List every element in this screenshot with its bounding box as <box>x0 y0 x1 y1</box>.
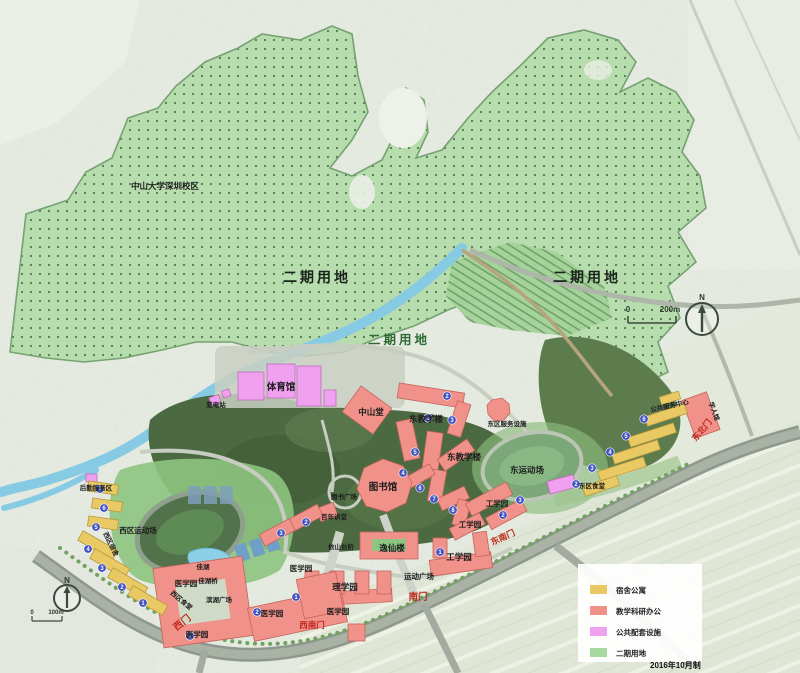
east-teaching-label-1: 东教学楼 <box>409 414 444 424</box>
scale-length-top: 200m <box>660 305 680 314</box>
numbered-marker: 7 <box>430 495 438 503</box>
numbered-marker: 1 <box>292 593 300 601</box>
legend-swatch-public <box>590 627 607 636</box>
legend-swatch-teaching <box>590 606 607 615</box>
east-service-label: 东区服务设施 <box>488 419 528 428</box>
legend-label-public: 公共配套设施 <box>616 627 661 637</box>
campus-master-plan-map: 2 1 3 5 4 6 7 8 2 3 1 2 3 1 1 2 7 6 5 4 … <box>0 0 800 673</box>
gate-southwest-label: 西南门 <box>299 620 325 630</box>
library-label: 图书馆 <box>369 481 398 493</box>
campus-area-label: 中山大学深圳校区 <box>131 181 200 191</box>
north-letter-top: N <box>699 293 705 302</box>
phase2-label-mid: 二期用地 <box>368 332 430 347</box>
med-park-label-2: 医学园 <box>290 563 313 573</box>
numbered-marker: 6 <box>640 415 648 423</box>
numbered-marker: 1 <box>139 599 147 607</box>
numbered-marker: 3 <box>98 564 106 572</box>
substation-label: 变电站 <box>206 400 226 409</box>
scale-length-bottom: 100m <box>48 610 63 616</box>
west-field-label: 西区运动场 <box>119 525 157 535</box>
science-park-label: 理学园 <box>332 582 358 592</box>
jia-lake-label: 佳湖 <box>197 562 211 571</box>
phase2-label-left: 二期用地 <box>283 269 351 285</box>
map-canvas: 2 1 3 5 4 6 7 8 2 3 1 2 3 1 1 2 7 6 5 4 … <box>0 0 800 673</box>
numbered-marker: 2 <box>302 518 310 526</box>
numbered-marker: 5 <box>92 523 100 531</box>
numbered-marker: 5 <box>411 448 419 456</box>
med-park-label-3: 医学园 <box>261 608 284 618</box>
numbered-marker: 5 <box>622 432 630 440</box>
numbered-marker: 6 <box>100 504 108 512</box>
numbered-marker: 3 <box>516 496 524 504</box>
centennial-hall-label: 百年讲堂 <box>321 512 348 521</box>
zhongshan-hall-label: 中山堂 <box>358 407 384 417</box>
eng-park-label-3: 工学园 <box>459 519 482 529</box>
logistics-area-label: 后勤服务区 <box>80 483 113 492</box>
numbered-marker: 4 <box>84 545 92 553</box>
east-teaching-label-2: 东教学楼 <box>447 452 482 462</box>
lakeside-plaza-label: 滨湖广场 <box>206 595 233 604</box>
eng-park-label-2: 工学园 <box>486 498 509 508</box>
numbered-marker: 4 <box>606 448 614 456</box>
legend-swatch-dorm <box>590 585 607 594</box>
north-letter-bottom: N <box>64 576 70 585</box>
legend-label-phase2: 二期用地 <box>616 648 646 658</box>
gymnasium-label: 体育馆 <box>267 381 296 393</box>
legend-label-dorm: 宿舍公寓 <box>616 585 646 595</box>
jia-lake-bridge-label: 佳湖桥 <box>198 576 218 585</box>
numbered-marker: 2 <box>499 511 507 519</box>
numbered-marker: 4 <box>399 469 407 477</box>
eng-park-label-1: 工学园 <box>446 552 472 562</box>
east-field-label: 东运动场 <box>510 465 545 475</box>
yixian-building-label: 逸仙楼 <box>379 543 405 553</box>
numbered-marker: 3 <box>277 529 285 537</box>
legend-swatch-phase2 <box>590 648 607 657</box>
library-plaza-label: 图书广场 <box>331 492 358 501</box>
numbered-marker: 2 <box>118 583 126 591</box>
numbered-marker: 1 <box>436 548 444 556</box>
med-park-label-1: 医学园 <box>175 578 198 588</box>
phase2-label-right: 二期用地 <box>553 269 621 285</box>
med-park-label-5: 医学园 <box>186 629 209 639</box>
med-park-label-4: 医学园 <box>327 606 350 616</box>
legend-label-teaching: 教学科研办公 <box>615 606 661 616</box>
hill-steps-label: 依山台阶 <box>328 542 355 551</box>
legend: 宿舍公寓 教学科研办公 公共配套设施 二期用地 <box>578 564 702 662</box>
numbered-marker: 2 <box>443 392 451 400</box>
gate-south-label: 南门 <box>408 591 427 603</box>
scale-zero-top: 0 <box>626 305 631 314</box>
numbered-marker: 3 <box>448 416 456 424</box>
numbered-marker: 6 <box>416 484 424 492</box>
numbered-marker: 3 <box>588 464 596 472</box>
east-canteen-label: 东区食堂 <box>579 481 606 490</box>
date-note: 2016年10月制 <box>650 660 701 670</box>
numbered-marker: 8 <box>449 506 457 514</box>
sports-plaza-label: 运动广场 <box>404 571 434 581</box>
